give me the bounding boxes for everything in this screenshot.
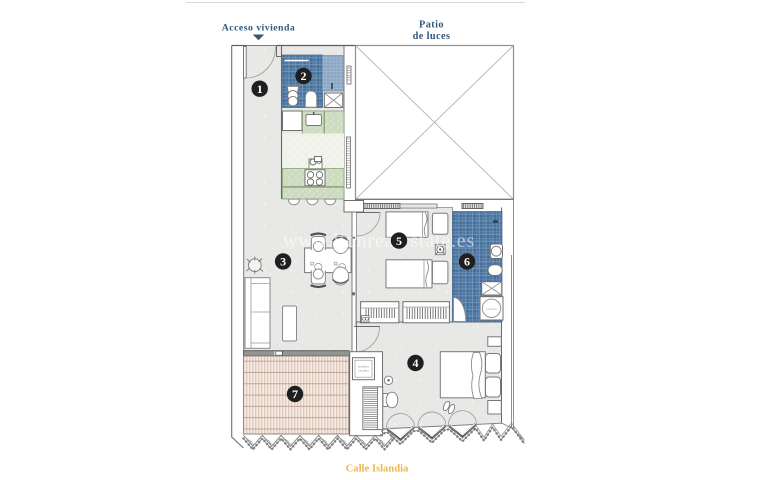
- svg-text:www.lionrealestate.es: www.lionrealestate.es: [283, 230, 475, 252]
- svg-text:5: 5: [396, 234, 402, 248]
- svg-text:Acceso vivienda: Acceso vivienda: [222, 22, 295, 33]
- svg-text:6: 6: [464, 255, 470, 269]
- svg-text:3: 3: [280, 255, 286, 269]
- svg-text:2: 2: [301, 69, 307, 83]
- svg-text:escalera: escalera: [358, 369, 369, 373]
- svg-text:7: 7: [292, 387, 298, 401]
- svg-text:lavadora: lavadora: [486, 307, 497, 311]
- svg-text:4: 4: [413, 356, 419, 370]
- svg-text:de luces: de luces: [413, 31, 451, 42]
- svg-text:Patio: Patio: [419, 20, 444, 31]
- svg-text:Calle Islandia: Calle Islandia: [346, 464, 409, 475]
- svg-text:1: 1: [257, 82, 263, 96]
